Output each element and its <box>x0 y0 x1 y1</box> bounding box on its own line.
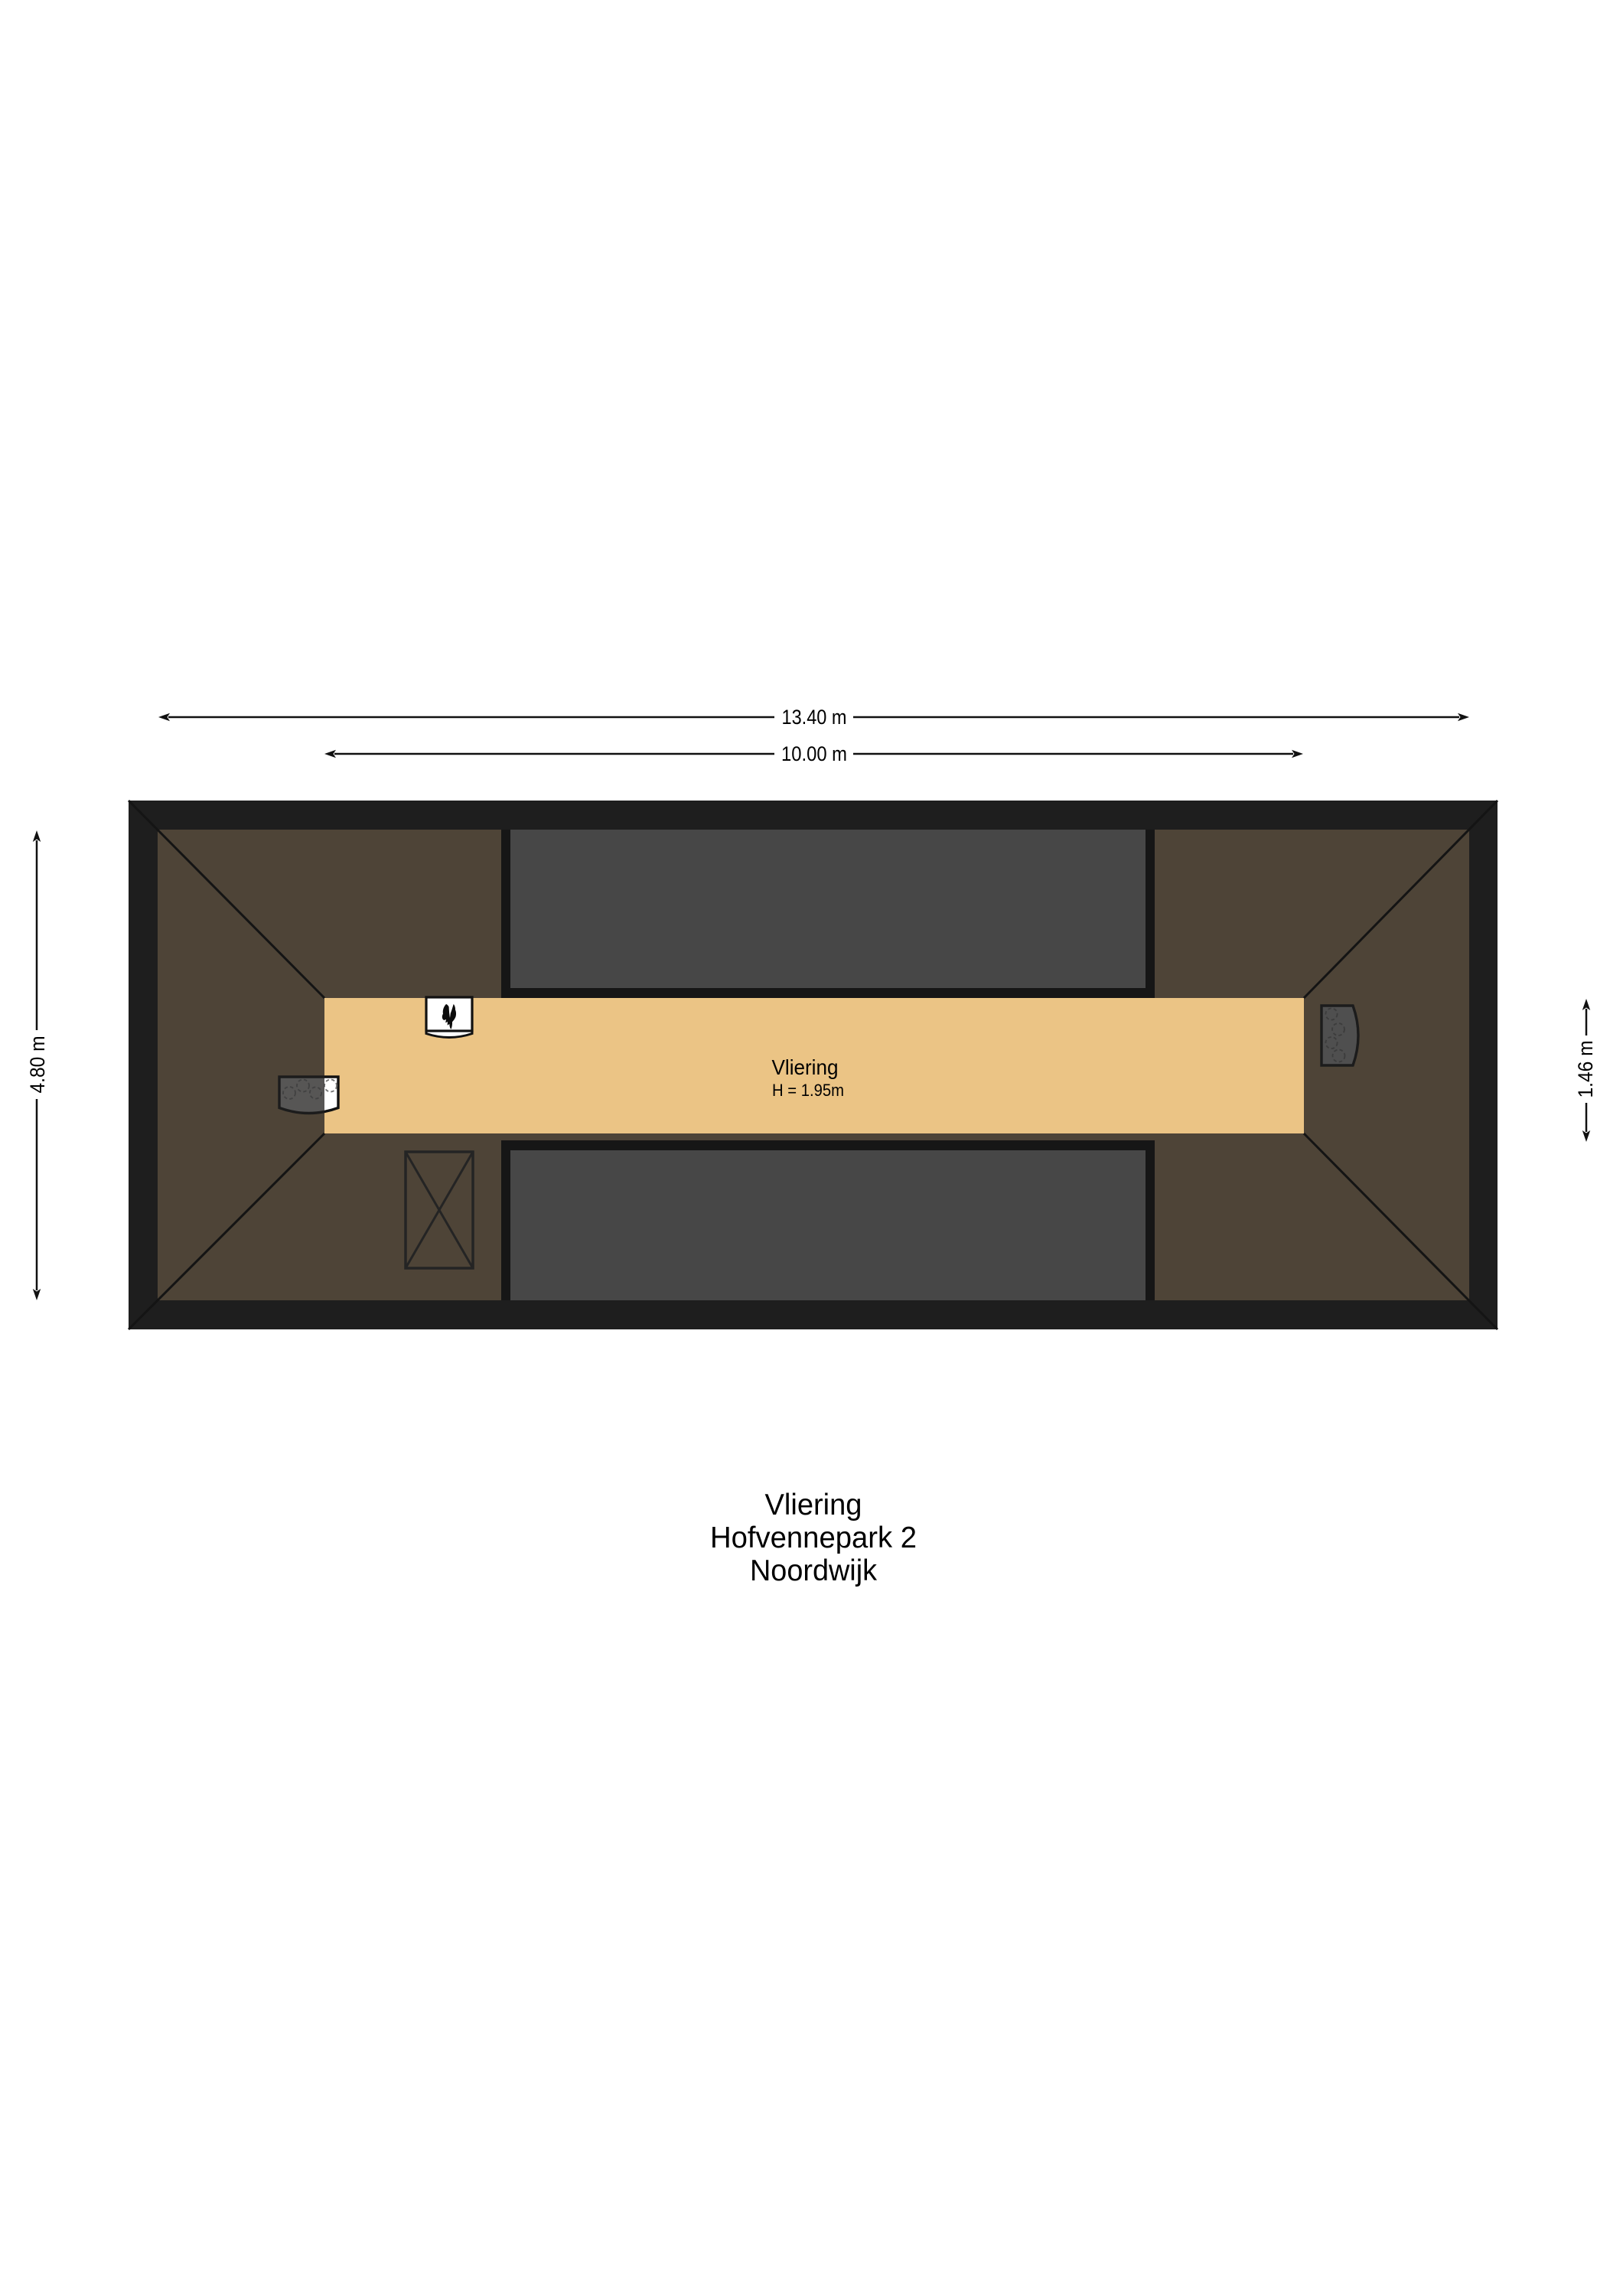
svg-text:Vliering: Vliering <box>765 1489 862 1521</box>
svg-text:Vliering: Vliering <box>772 1055 839 1079</box>
svg-text:13.40 m: 13.40 m <box>782 706 847 729</box>
svg-text:1.46 m: 1.46 m <box>1574 1041 1597 1098</box>
svg-text:10.00 m: 10.00 m <box>781 742 847 765</box>
svg-text:Noordwijk: Noordwijk <box>750 1554 877 1587</box>
svg-text:H = 1.95m: H = 1.95m <box>772 1081 844 1100</box>
svg-text:4.80 m: 4.80 m <box>26 1036 49 1094</box>
svg-text:Hofvennepark 2: Hofvennepark 2 <box>710 1521 917 1554</box>
